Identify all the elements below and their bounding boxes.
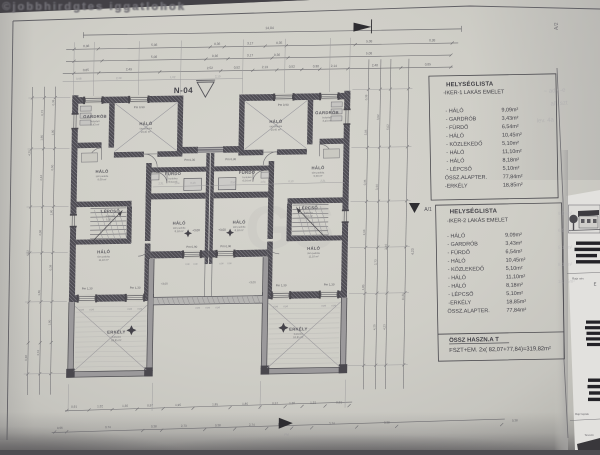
svg-text:HÁLÓ: HÁLÓ [173, 220, 187, 225]
svg-text:- HÁLÓ: - HÁLÓ [446, 157, 464, 164]
svg-text:Tervező: Tervező [584, 433, 594, 437]
svg-text:3,74: 3,74 [36, 350, 40, 356]
svg-text:10,45 m²: 10,45 m² [271, 127, 281, 131]
svg-text:A/1: A/1 [424, 207, 432, 213]
svg-text:0,38: 0,38 [512, 418, 518, 422]
svg-text:11,10 m²: 11,10 m² [99, 258, 109, 262]
svg-text:ERKÉLY: ERKÉLY [289, 326, 307, 331]
svg-text:HÁLÓ: HÁLÓ [139, 121, 153, 126]
svg-text:- KÖZLEKEDŐ: - KÖZLEKEDŐ [448, 265, 484, 273]
svg-text:all. szt: all. szt [550, 100, 568, 107]
svg-text:18,85 m²: 18,85 m² [293, 335, 303, 339]
svg-text:- HÁLÓ: - HÁLÓ [448, 274, 466, 281]
svg-text:3,43 m²: 3,43 m² [322, 119, 331, 123]
svg-text:1,95: 1,95 [175, 403, 181, 407]
svg-text:3,43 m²: 3,43 m² [90, 122, 99, 126]
svg-text:0,90: 0,90 [205, 307, 210, 309]
svg-text:- LÉPCSŐ: - LÉPCSŐ [447, 165, 472, 172]
svg-text:1,85: 1,85 [212, 402, 218, 406]
svg-text:FÜRDŐ: FÜRDŐ [239, 170, 256, 175]
svg-text:0,38: 0,38 [429, 38, 435, 42]
svg-text:0,38: 0,38 [313, 64, 319, 68]
svg-text:- HÁLÓ: - HÁLÓ [447, 232, 465, 239]
svg-text:0,96: 0,96 [57, 426, 63, 430]
svg-text:0,38: 0,38 [24, 355, 28, 361]
svg-text:2,13: 2,13 [262, 65, 268, 69]
svg-text:2,10: 2,10 [215, 74, 221, 78]
svg-text:E: E [594, 282, 597, 287]
svg-text:0,38: 0,38 [215, 423, 221, 427]
svg-text:Rajz lépték: Rajz lépték [575, 412, 589, 416]
svg-text:+3,00: +3,00 [218, 228, 226, 232]
svg-text:5,08: 5,08 [151, 55, 157, 59]
svg-text:- HÁLÓ: - HÁLÓ [446, 149, 464, 156]
svg-text:18,85m²: 18,85m² [503, 182, 523, 188]
svg-text:2,44: 2,44 [39, 175, 43, 181]
svg-text:- FÜRDŐ: - FÜRDŐ [447, 249, 470, 256]
svg-text:6,54m²: 6,54m² [505, 249, 522, 255]
svg-text:1,80: 1,80 [48, 319, 52, 325]
svg-text:2,73: 2,73 [181, 424, 187, 428]
svg-text:5,10m²: 5,10m² [558, 245, 573, 250]
svg-text:11,10m²: 11,10m² [506, 274, 526, 280]
svg-text:3,17: 3,17 [247, 53, 253, 57]
svg-text:1,04: 1,04 [260, 180, 266, 184]
svg-text:Pm 0,30: Pm 0,30 [225, 157, 236, 161]
svg-text:2,14: 2,14 [331, 64, 337, 68]
svg-text:2,52: 2,52 [207, 66, 213, 70]
svg-text:0,73: 0,73 [40, 110, 44, 116]
svg-text:0,38: 0,38 [48, 264, 52, 270]
svg-text:0,13: 0,13 [190, 181, 196, 185]
svg-text:2,49: 2,49 [126, 67, 132, 71]
svg-text:1,32: 1,32 [97, 404, 103, 408]
svg-text:3,43m²: 3,43m² [505, 241, 522, 247]
svg-text:2,08: 2,08 [38, 230, 42, 236]
svg-text:11,31: 11,31 [401, 293, 405, 300]
svg-text:- GARDRÓB: - GARDRÓB [447, 240, 478, 248]
svg-text:0,38: 0,38 [364, 94, 368, 100]
svg-text:0,90: 0,90 [321, 306, 326, 308]
svg-text:1,32: 1,32 [310, 401, 316, 405]
svg-text:2,49: 2,49 [116, 76, 122, 80]
svg-text:0,97: 0,97 [272, 401, 278, 405]
svg-text:1,30: 1,30 [122, 404, 128, 408]
svg-text:GARDRÓB: GARDRÓB [83, 114, 107, 119]
svg-text:0,38: 0,38 [384, 420, 390, 424]
svg-text:0,98: 0,98 [76, 77, 82, 81]
svg-text:HÁLÓ: HÁLÓ [307, 246, 321, 251]
svg-text:4,23: 4,23 [411, 248, 415, 255]
svg-text:10,45m²: 10,45m² [506, 257, 526, 263]
svg-text:5,08: 5,08 [366, 39, 372, 43]
svg-text:5,08: 5,08 [366, 51, 372, 55]
svg-text:5,08: 5,08 [151, 43, 157, 47]
svg-text:10,45 m²: 10,45 m² [141, 130, 151, 134]
svg-text:5,10m²: 5,10m² [506, 291, 523, 297]
svg-text:+3,00: +3,00 [161, 282, 169, 286]
svg-text:77,84m²: 77,84m² [503, 174, 523, 180]
svg-text:77,84m²: 77,84m² [506, 307, 526, 313]
svg-text:0,90: 0,90 [195, 308, 200, 310]
svg-text:6,54m²: 6,54m² [558, 228, 573, 233]
svg-text:0,52: 0,52 [289, 65, 295, 69]
svg-text:5,10 m²: 5,10 m² [106, 217, 115, 221]
svg-text:Pm 1,30: Pm 1,30 [82, 286, 93, 290]
svg-text:2,48: 2,48 [372, 63, 378, 67]
svg-text:11,10m²: 11,10m² [502, 149, 522, 155]
svg-text:ÖSSZ.ALAPTER.: ÖSSZ.ALAPTER. [445, 174, 487, 182]
svg-text:-ERKÉLY: -ERKÉLY [448, 299, 471, 306]
svg-text:0,36: 0,36 [363, 179, 367, 185]
svg-text:lev. 4a: lev. 4a [537, 117, 555, 124]
svg-text:8,18m²: 8,18m² [506, 282, 523, 288]
svg-text:Pm 0,90: Pm 0,90 [186, 245, 197, 249]
svg-text:1,02: 1,02 [170, 75, 176, 79]
svg-text:9,09 m²: 9,09 m² [314, 174, 323, 178]
svg-text:2,31: 2,31 [320, 179, 326, 183]
svg-text:6,54m²: 6,54m² [502, 124, 519, 130]
svg-text:3,17: 3,17 [247, 41, 253, 45]
svg-text:©jobbhirdgtes iggatlohok: ©jobbhirdgtes iggatlohok [3, 1, 187, 13]
svg-text:- KÖZLEKEDŐ: - KÖZLEKEDŐ [446, 140, 482, 148]
svg-text:5,10m²: 5,10m² [502, 141, 519, 147]
svg-text:+3,00: +3,00 [192, 228, 200, 232]
svg-text:LÉPCSŐ: LÉPCSŐ [101, 208, 121, 213]
svg-text:LÉPCSŐ: LÉPCSŐ [299, 205, 319, 210]
svg-text:9,09 m²: 9,09 m² [98, 177, 107, 181]
svg-text:5,10 m²: 5,10 m² [304, 214, 313, 218]
svg-text:HÁLÓ: HÁLÓ [97, 249, 111, 254]
svg-text:HÁLÓ: HÁLÓ [312, 165, 326, 170]
svg-text:0,35: 0,35 [276, 41, 282, 45]
svg-text:+3,00: +3,00 [249, 280, 257, 284]
svg-text:0,85: 0,85 [425, 62, 431, 66]
svg-text:ÖSSZ.ALAPTER.: ÖSSZ.ALAPTER. [447, 307, 489, 315]
svg-text:1,85: 1,85 [242, 402, 248, 406]
svg-text:0,90: 0,90 [89, 309, 94, 311]
svg-text:N-04: N-04 [174, 86, 194, 95]
svg-text:6,54 m²: 6,54 m² [168, 180, 177, 184]
svg-text:1,80: 1,80 [361, 284, 365, 290]
svg-text:Pm 1,30: Pm 1,30 [324, 282, 335, 286]
svg-text:0,36: 0,36 [212, 54, 218, 58]
svg-text:0,85: 0,85 [83, 68, 89, 72]
svg-text:3,74: 3,74 [105, 425, 111, 429]
svg-text:5,02: 5,02 [386, 124, 390, 130]
svg-text:HÁLÓ: HÁLÓ [269, 119, 283, 124]
svg-text:9,09m²: 9,09m² [501, 107, 518, 113]
svg-text:0,38: 0,38 [51, 99, 55, 105]
svg-text:- HÁLÓ: - HÁLÓ [446, 132, 464, 139]
svg-text:0,90: 0,90 [283, 306, 288, 308]
svg-text:0,36: 0,36 [274, 53, 280, 57]
svg-text:4,25: 4,25 [27, 150, 31, 156]
svg-text:0,97: 0,97 [147, 403, 153, 407]
svg-text:0,60: 0,60 [50, 164, 54, 170]
svg-text:-IKER-2 LAKÁS EMELET: -IKER-2 LAKÁS EMELET [447, 216, 509, 224]
svg-text:- GARDRÓB: - GARDRÓB [446, 115, 477, 123]
svg-text:ÖSSZ HASZN.A T: ÖSSZ HASZN.A T [449, 336, 499, 344]
svg-text:1,90: 1,90 [40, 135, 44, 141]
svg-text:- LÉPCSŐ: - LÉPCSŐ [448, 291, 473, 298]
svg-text:- FÜRDŐ: - FÜRDŐ [446, 124, 469, 131]
svg-text:0,38: 0,38 [83, 44, 89, 48]
svg-text:1,80: 1,80 [51, 129, 55, 135]
svg-text:- HÁLÓ: - HÁLÓ [448, 257, 466, 264]
svg-text:11,10 m²: 11,10 m² [309, 254, 319, 258]
svg-text:FM: FM [284, 433, 289, 437]
svg-text:3,02: 3,02 [376, 114, 380, 120]
svg-text:FÜRDŐ: FÜRDŐ [165, 171, 182, 176]
svg-text:0,91: 0,91 [71, 405, 77, 409]
svg-text:-IKER-1 LAKÁS EMELET: -IKER-1 LAKÁS EMELET [443, 88, 505, 96]
svg-text:18,85 m²: 18,85 m² [111, 338, 121, 342]
svg-text:5,10m²: 5,10m² [503, 166, 520, 172]
svg-text:0,38: 0,38 [151, 424, 157, 428]
svg-text:18,85m²: 18,85m² [558, 279, 575, 284]
svg-text:2,31: 2,31 [158, 181, 164, 185]
svg-text:2,73: 2,73 [373, 259, 377, 265]
svg-text:HÁLÓ: HÁLÓ [96, 169, 110, 174]
svg-text:2,10: 2,10 [362, 229, 366, 235]
svg-text:2,06: 2,06 [364, 129, 368, 135]
svg-text:1,30: 1,30 [289, 401, 295, 405]
svg-text:A/2: A/2 [554, 22, 560, 30]
svg-text:8,18 m²: 8,18 m² [175, 229, 184, 233]
svg-text:1,80: 1,80 [49, 209, 53, 215]
svg-text:0,52: 0,52 [234, 66, 240, 70]
svg-text:5,10m²: 5,10m² [506, 266, 523, 272]
svg-text:9,09m²: 9,09m² [558, 211, 573, 216]
svg-text:8,18m²: 8,18m² [558, 262, 573, 267]
svg-text:1,80: 1,80 [37, 290, 41, 296]
svg-text:Pm 0,30: Pm 0,30 [184, 158, 195, 162]
svg-text:2,57: 2,57 [230, 180, 236, 184]
svg-text:3,44: 3,44 [375, 184, 379, 190]
svg-text:18,85m²: 18,85m² [506, 299, 526, 305]
svg-text:Pm 0,90: Pm 0,90 [220, 244, 231, 248]
svg-text:0,13: 0,13 [288, 179, 294, 183]
svg-text:0,90: 0,90 [215, 307, 220, 309]
svg-text:-ERKÉLY: -ERKÉLY [445, 182, 468, 189]
svg-text:ERKÉLY: ERKÉLY [107, 329, 125, 334]
svg-text:8,18 m²: 8,18 m² [235, 228, 244, 232]
svg-text:2,74: 2,74 [249, 423, 255, 427]
svg-text:- HÁLÓ: - HÁLÓ [445, 107, 463, 114]
svg-text:0,91: 0,91 [336, 400, 342, 404]
svg-text:10,45m²: 10,45m² [502, 132, 522, 138]
svg-text:Pm 1,30: Pm 1,30 [130, 286, 141, 290]
svg-text:Pm 0,90: Pm 0,90 [278, 103, 289, 107]
svg-text:8,18m²: 8,18m² [502, 157, 519, 163]
svg-text:GARDRÓB: GARDRÓB [315, 110, 339, 115]
svg-text:6,54 m²: 6,54 m² [242, 178, 251, 182]
svg-text:0,36: 0,36 [214, 42, 220, 46]
svg-text:9,09m²: 9,09m² [505, 232, 522, 238]
svg-text:3,43m²: 3,43m² [502, 116, 519, 122]
svg-text:14,04: 14,04 [265, 26, 274, 30]
svg-text:4,23: 4,23 [382, 324, 386, 330]
svg-text:4,20: 4,20 [372, 324, 376, 330]
svg-text:HÁLÓ: HÁLÓ [233, 219, 247, 224]
svg-text:- HÁLÓ: - HÁLÓ [448, 282, 466, 289]
svg-text:3,74: 3,74 [329, 421, 335, 425]
svg-text:Pm 1,30: Pm 1,30 [276, 283, 287, 287]
svg-text:Pm 0,90: Pm 0,90 [134, 105, 145, 109]
svg-text:0,90: 0,90 [127, 309, 132, 311]
